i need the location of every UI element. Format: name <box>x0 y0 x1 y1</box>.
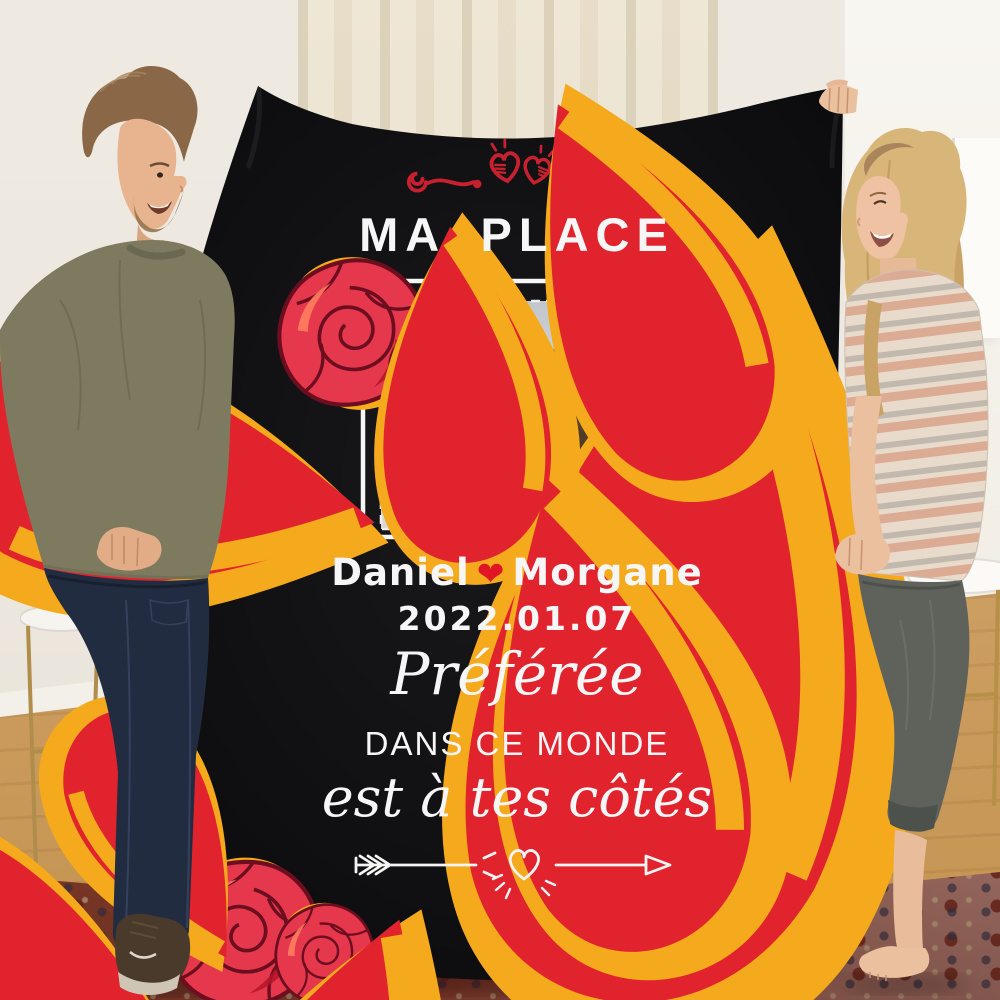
product-photo-scene: MA PLACE Daniel❤Morgane 2022.01.07 Préfé… <box>0 0 1000 1000</box>
man-holding-blanket <box>0 0 340 1000</box>
woman-holding-blanket <box>800 0 1000 1000</box>
